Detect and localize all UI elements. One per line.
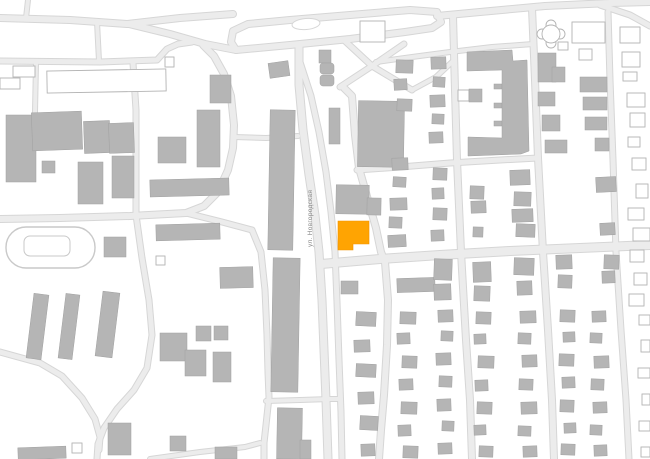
building xyxy=(475,380,488,391)
building xyxy=(600,223,616,236)
building xyxy=(434,284,452,301)
building xyxy=(170,436,186,451)
building xyxy=(397,99,412,112)
building xyxy=(545,140,567,153)
outline-building xyxy=(558,42,568,50)
city-map: ул. Новгородская xyxy=(0,0,650,459)
building xyxy=(602,271,615,283)
building xyxy=(393,177,407,188)
building xyxy=(594,356,609,369)
outline-building xyxy=(572,22,605,43)
building xyxy=(319,50,331,63)
building xyxy=(514,192,531,207)
outline-building xyxy=(630,250,644,262)
building xyxy=(112,156,134,198)
building xyxy=(518,333,531,344)
building xyxy=(592,311,606,322)
building xyxy=(390,198,407,211)
building xyxy=(512,209,533,223)
building xyxy=(277,408,303,459)
building xyxy=(108,123,134,154)
building xyxy=(433,168,447,180)
road xyxy=(97,22,99,61)
outline-building xyxy=(72,443,82,453)
building xyxy=(431,230,444,241)
outline-building xyxy=(632,158,646,170)
outline-building xyxy=(47,69,166,93)
building xyxy=(469,89,482,102)
outline-building xyxy=(623,72,637,81)
outline-building xyxy=(579,49,592,60)
building xyxy=(196,326,211,341)
building xyxy=(438,310,453,323)
outline-building xyxy=(633,228,650,241)
building xyxy=(367,198,381,215)
building xyxy=(436,353,451,366)
building xyxy=(470,186,484,199)
building xyxy=(356,311,377,326)
outline-building xyxy=(622,52,640,67)
building xyxy=(396,60,413,74)
building xyxy=(400,312,416,325)
building xyxy=(474,286,491,302)
building xyxy=(594,445,607,456)
building xyxy=(474,425,486,435)
building xyxy=(398,425,411,436)
building xyxy=(220,267,254,289)
building xyxy=(320,63,334,74)
building xyxy=(476,312,491,325)
church-body xyxy=(542,25,560,43)
building xyxy=(494,121,502,126)
building xyxy=(590,425,602,435)
building xyxy=(213,352,231,382)
building xyxy=(160,333,187,361)
building xyxy=(78,162,103,204)
building xyxy=(552,67,565,82)
outline-building xyxy=(630,113,645,127)
building xyxy=(185,350,206,376)
building xyxy=(441,331,453,341)
building xyxy=(595,138,609,151)
building xyxy=(438,443,452,454)
building xyxy=(268,61,290,79)
building xyxy=(516,224,535,238)
building xyxy=(402,356,417,369)
building xyxy=(519,379,533,390)
building xyxy=(354,340,370,353)
road xyxy=(266,399,340,401)
building xyxy=(392,158,408,171)
building xyxy=(477,402,492,415)
building xyxy=(431,57,446,70)
building xyxy=(473,262,492,283)
building xyxy=(329,108,340,144)
building xyxy=(42,161,55,173)
outline-building xyxy=(628,137,640,147)
building xyxy=(556,255,572,270)
outline-building xyxy=(634,273,647,285)
building xyxy=(523,446,537,457)
building xyxy=(558,275,572,288)
building xyxy=(518,426,531,436)
outline-building xyxy=(0,78,20,89)
building xyxy=(560,400,574,412)
building xyxy=(437,399,451,411)
building xyxy=(300,440,311,459)
outline-building xyxy=(13,66,35,77)
building xyxy=(514,258,535,276)
building xyxy=(403,446,418,459)
building xyxy=(18,446,66,459)
building xyxy=(361,444,375,456)
building xyxy=(439,376,452,387)
outline-building xyxy=(636,184,648,198)
building xyxy=(389,217,402,228)
building xyxy=(562,377,575,388)
building xyxy=(563,332,575,342)
building xyxy=(360,416,379,431)
building xyxy=(6,115,36,182)
building xyxy=(356,363,377,377)
building xyxy=(473,227,483,237)
building xyxy=(583,97,607,110)
building xyxy=(434,259,453,281)
outline-building xyxy=(638,368,650,378)
building xyxy=(596,176,617,192)
building xyxy=(520,311,536,324)
outline-building xyxy=(639,315,650,325)
building xyxy=(494,84,502,89)
building xyxy=(542,115,560,131)
building xyxy=(388,235,407,248)
building xyxy=(271,258,300,392)
building xyxy=(474,334,486,344)
building xyxy=(433,77,446,88)
building xyxy=(564,423,576,433)
outline-building xyxy=(642,394,650,405)
building xyxy=(214,326,228,340)
outline-building xyxy=(156,256,165,265)
building xyxy=(517,281,532,296)
building xyxy=(560,310,575,323)
outline-building xyxy=(165,57,174,67)
building xyxy=(432,114,444,124)
building xyxy=(394,79,408,91)
outline-building xyxy=(458,90,469,101)
building xyxy=(479,446,493,457)
outline-building xyxy=(628,208,644,220)
outline-building xyxy=(629,294,644,306)
building xyxy=(158,137,186,163)
building xyxy=(604,255,619,270)
building xyxy=(150,178,229,197)
building xyxy=(510,170,531,186)
outline-building xyxy=(641,340,650,352)
outline-building xyxy=(639,421,650,431)
road xyxy=(26,0,28,18)
building xyxy=(210,75,231,103)
building xyxy=(590,333,602,343)
building xyxy=(522,355,537,368)
building xyxy=(268,110,295,250)
building xyxy=(591,379,604,390)
building xyxy=(320,75,334,86)
outline-building xyxy=(360,21,385,42)
building xyxy=(104,237,126,257)
building xyxy=(197,110,220,167)
street-name-label: ул. Новгородская xyxy=(307,190,314,247)
building xyxy=(429,132,443,143)
building xyxy=(559,354,574,367)
building xyxy=(561,444,575,455)
building xyxy=(432,188,444,199)
map-canvas[interactable]: ул. Новгородская xyxy=(0,0,650,459)
building xyxy=(215,447,237,459)
building xyxy=(585,117,607,130)
building xyxy=(156,223,220,241)
building xyxy=(580,77,607,92)
building xyxy=(494,103,502,108)
building xyxy=(358,392,374,405)
outline-building xyxy=(641,447,650,457)
building xyxy=(593,402,607,413)
building xyxy=(397,333,410,344)
building xyxy=(336,185,370,215)
building xyxy=(442,421,454,431)
building xyxy=(108,423,131,455)
building xyxy=(341,281,358,294)
building xyxy=(401,402,417,415)
building xyxy=(538,92,555,106)
building xyxy=(521,402,537,415)
building xyxy=(478,356,494,369)
building xyxy=(83,121,110,154)
building xyxy=(433,208,447,220)
building xyxy=(399,379,413,390)
outline-building xyxy=(620,27,640,43)
building xyxy=(471,201,486,214)
building xyxy=(397,277,435,292)
building xyxy=(430,95,445,108)
outline-building xyxy=(627,93,645,107)
building xyxy=(31,111,82,151)
